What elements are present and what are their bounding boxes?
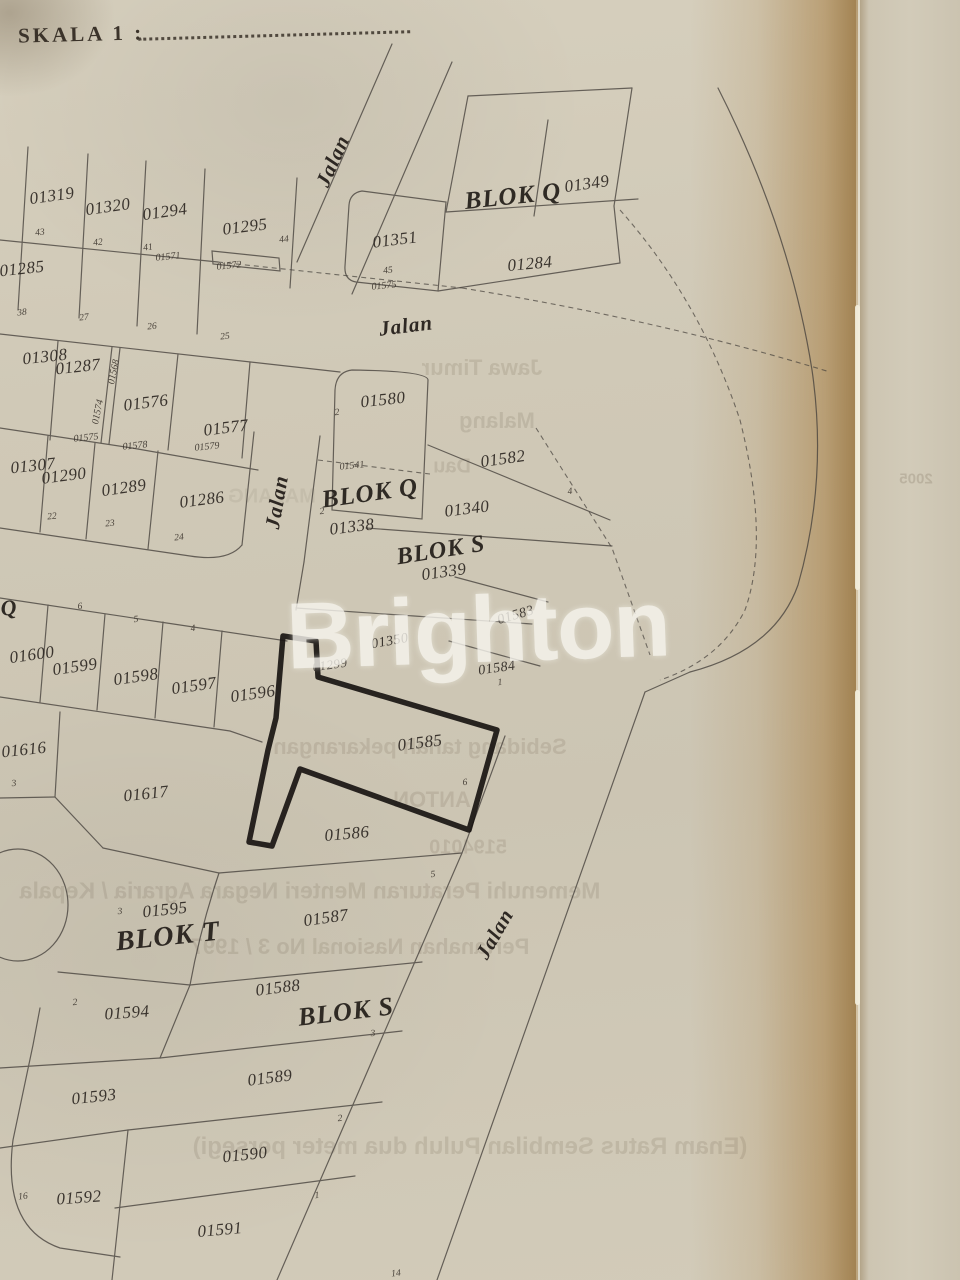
small-mark: 2 [72, 998, 78, 1008]
small-mark: 43 [35, 228, 45, 239]
parcel-label: 01284 [507, 252, 554, 276]
culdesac-circle [0, 849, 68, 961]
small-mark: 23 [105, 519, 115, 530]
small-mark: 42 [93, 238, 103, 249]
small-mark: 14 [391, 1269, 401, 1280]
parcel-label: 01594 [104, 1001, 150, 1024]
photographed-cadastral-map: Jawa Timur Malang Dau MALANG Sebidang ta… [0, 0, 960, 1280]
block-label: Q [0, 594, 19, 622]
small-mark: 24 [174, 533, 184, 544]
parcel-label: 01586 [324, 822, 371, 846]
scale-label: SKALA 1 : [18, 20, 145, 48]
parcel-label: 01592 [56, 1186, 102, 1209]
small-mark: 3 [11, 779, 17, 789]
parcel-label: 01591 [197, 1218, 244, 1242]
small-mark: 25 [220, 332, 230, 343]
small-mark: 1 [314, 1191, 320, 1201]
brighton-watermark: Brighton [284, 569, 671, 690]
small-mark: 5 [430, 870, 436, 880]
small-mark: 4 [190, 624, 196, 634]
small-mark: 6 [462, 778, 468, 788]
small-mark: 2 [334, 408, 340, 418]
small-mark: 3 [370, 1029, 376, 1039]
small-mark: 2 [337, 1114, 343, 1124]
small-mark: 5 [133, 615, 139, 625]
small-mark: 22 [47, 512, 57, 523]
small-mark: 4 [567, 487, 573, 497]
small-mark: 41 [143, 243, 153, 254]
small-mark: 45 [383, 266, 393, 277]
small-mark: 3 [117, 907, 123, 917]
small-mark: 26 [147, 322, 157, 333]
small-mark: 44 [279, 235, 289, 246]
small-mark: 38 [17, 308, 27, 319]
small-mark: 2 [319, 507, 325, 517]
small-mark: 27 [79, 313, 89, 324]
small-mark: 6 [77, 602, 83, 612]
small-mark: 16 [18, 1192, 28, 1203]
